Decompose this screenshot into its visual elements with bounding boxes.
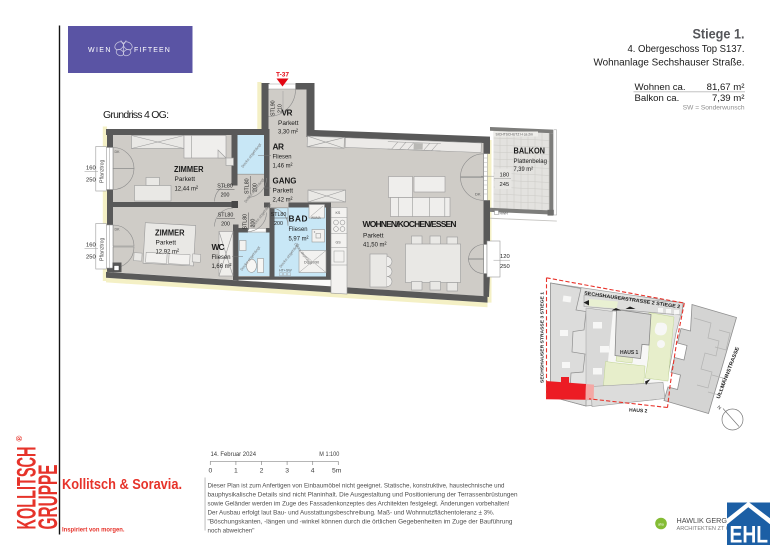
svg-text:HAUS 2: HAUS 2 — [629, 408, 648, 415]
svg-text:T-37: T-37 — [276, 72, 289, 79]
svg-text:4. Obergeschoss Top S137.: 4. Obergeschoss Top S137. — [628, 44, 745, 55]
svg-text:aha: aha — [658, 523, 664, 527]
svg-text:WAMA: WAMA — [311, 216, 322, 220]
svg-text:noch abweichen": noch abweichen" — [208, 529, 255, 535]
svg-text:0: 0 — [209, 468, 213, 475]
svg-text:Dieser Plan ist zum Anfertigen: Dieser Plan ist zum Anfertigen von Einba… — [208, 484, 505, 490]
svg-text:Stiege 1.: Stiege 1. — [693, 26, 745, 42]
svg-text:N: N — [716, 405, 723, 412]
svg-text:Der Ausbau erfolgt laut Bau-: Der Ausbau erfolgt laut Bau- und Ausstat… — [208, 511, 495, 517]
svg-text:1,66 m²: 1,66 m² — [212, 263, 233, 270]
svg-text:DK: DK — [115, 228, 121, 232]
svg-text:WOHNEN/KOCHEN/ESSEN: WOHNEN/KOCHEN/ESSEN — [363, 219, 457, 229]
svg-text:200: 200 — [221, 222, 230, 228]
svg-text:HAUS 1: HAUS 1 — [620, 350, 639, 356]
svg-text:STL80: STL80 — [245, 178, 251, 194]
svg-text:1: 1 — [234, 468, 238, 475]
svg-text:4: 4 — [311, 468, 315, 475]
svg-text:160: 160 — [86, 243, 96, 249]
svg-text:Balkon ca.: Balkon ca. — [635, 93, 680, 104]
svg-text:Pflanztrog: Pflanztrog — [100, 238, 106, 261]
svg-text:®: ® — [15, 436, 24, 442]
svg-text:STL80: STL80 — [217, 184, 233, 190]
svg-text:12,44 m²: 12,44 m² — [175, 186, 199, 193]
svg-text:SW = Sonderwunsch: SW = Sonderwunsch — [683, 105, 745, 112]
svg-text:Parkett: Parkett — [363, 233, 384, 240]
svg-text:AR: AR — [273, 142, 285, 152]
svg-text:ZIMMER: ZIMMER — [174, 164, 204, 174]
svg-text:12,92 m²: 12,92 m² — [156, 249, 180, 256]
svg-text:WIEN: WIEN — [88, 47, 114, 54]
svg-text:Wohnen ca.: Wohnen ca. — [635, 82, 686, 93]
svg-text:200: 200 — [274, 221, 283, 227]
svg-text:VR: VR — [282, 108, 293, 118]
svg-text:Parkett: Parkett — [278, 120, 299, 127]
svg-text:250: 250 — [86, 178, 96, 184]
svg-text:5m: 5m — [332, 468, 342, 475]
svg-text:Plattenbelag: Plattenbelag — [514, 158, 548, 165]
svg-text:Parkett: Parkett — [156, 240, 177, 247]
svg-text:7,39 m²: 7,39 m² — [514, 166, 534, 173]
svg-text:EHL: EHL — [730, 522, 769, 545]
svg-text:GRUPPE: GRUPPE — [33, 465, 63, 530]
svg-text:M 1:100: M 1:100 — [319, 451, 339, 458]
svg-text:Grundriss 4 OG:: Grundriss 4 OG: — [103, 109, 169, 121]
svg-text:STL80: STL80 — [218, 213, 234, 219]
svg-text:160: 160 — [86, 166, 96, 172]
svg-text:bauphysikalische Details sind: bauphysikalische Details sind nicht Plan… — [208, 493, 518, 499]
svg-text:Fliesen: Fliesen — [273, 154, 292, 161]
svg-text:14. Februar 2024: 14. Februar 2024 — [211, 451, 257, 458]
svg-text:RWR: RWR — [500, 212, 509, 216]
svg-text:Parkett: Parkett — [175, 176, 196, 183]
svg-text:STL80: STL80 — [271, 212, 287, 218]
svg-text:DK: DK — [475, 192, 481, 197]
svg-text:sowie Geländer werden im Zuge: sowie Geländer werden im Zuge des Fassad… — [208, 501, 510, 508]
svg-text:KS: KS — [336, 211, 341, 215]
svg-text:STL90: STL90 — [271, 100, 277, 116]
svg-text:BAD: BAD — [289, 214, 308, 224]
svg-text:Kollitsch & Soravia.: Kollitsch & Soravia. — [62, 477, 182, 493]
svg-text:ZIMMER: ZIMMER — [155, 228, 185, 238]
svg-text:7,39 m²: 7,39 m² — [712, 93, 745, 104]
svg-text:GANG: GANG — [273, 176, 297, 186]
svg-text:Inspiriert von morgen.: Inspiriert von morgen. — [62, 527, 125, 534]
svg-text:Parkett: Parkett — [273, 188, 294, 195]
svg-text:180: 180 — [500, 173, 510, 179]
svg-text:245: 245 — [500, 182, 510, 188]
svg-text:DK: DK — [115, 150, 121, 154]
svg-text:2,42 m²: 2,42 m² — [273, 197, 294, 204]
svg-text:BALKON: BALKON — [514, 147, 546, 156]
svg-text:250: 250 — [86, 255, 96, 261]
svg-text:2: 2 — [260, 468, 264, 475]
svg-text:"Böschungskanten, -längen und: "Böschungskanten, -längen und -winkel kö… — [208, 520, 513, 526]
svg-text:WC: WC — [212, 242, 225, 252]
svg-text:SICHTSCHUTZ H ca 2m: SICHTSCHUTZ H ca 2m — [496, 133, 534, 137]
svg-text:GS: GS — [336, 241, 342, 245]
svg-text:1,46 m²: 1,46 m² — [273, 163, 294, 170]
svg-text:81,67 m²: 81,67 m² — [707, 82, 746, 93]
svg-text:FIFTEEN: FIFTEEN — [134, 47, 172, 54]
svg-text:SECHSHAUSER STRASSE 3 STIEGE 1: SECHSHAUSER STRASSE 3 STIEGE 1 — [540, 292, 545, 383]
svg-text:Fliesen: Fliesen — [212, 254, 231, 261]
svg-text:120: 120 — [500, 254, 510, 260]
svg-text:3: 3 — [285, 468, 289, 475]
svg-text:41,50 m²: 41,50 m² — [363, 242, 387, 249]
svg-text:3,30 m²: 3,30 m² — [278, 129, 299, 136]
svg-text:5,97 m²: 5,97 m² — [289, 236, 310, 243]
svg-text:Wohnanlage Sechshauser Straße.: Wohnanlage Sechshauser Straße. — [594, 58, 745, 69]
svg-text:Fliesen: Fliesen — [289, 226, 308, 233]
svg-text:Pflanztrog: Pflanztrog — [100, 160, 106, 183]
svg-text:STL80: STL80 — [243, 214, 249, 230]
svg-text:200: 200 — [221, 193, 230, 199]
svg-text:250: 250 — [500, 264, 510, 270]
svg-text:ARCHITEKTEN ZT GM: ARCHITEKTEN ZT GM — [677, 526, 736, 532]
